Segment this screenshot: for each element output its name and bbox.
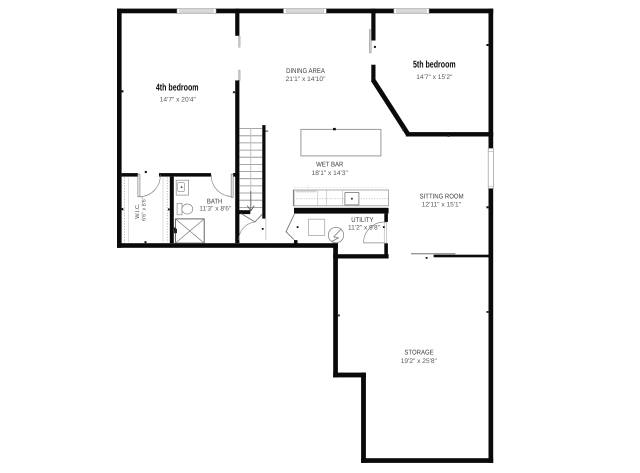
svg-text:UTILITY: UTILITY xyxy=(351,217,374,224)
svg-text:19'2" x 25'8": 19'2" x 25'8" xyxy=(401,358,438,365)
svg-text:11'2" x 9'8": 11'2" x 9'8" xyxy=(348,224,381,231)
svg-text:5th bedroom: 5th bedroom xyxy=(413,60,456,71)
svg-text:DINING AREA: DINING AREA xyxy=(286,68,325,75)
svg-text:18'1" x 14'3": 18'1" x 14'3" xyxy=(312,170,349,177)
svg-text:11'3" x 8'6": 11'3" x 8'6" xyxy=(199,206,232,213)
svg-text:WET BAR: WET BAR xyxy=(316,162,343,169)
svg-text:STORAGE: STORAGE xyxy=(404,350,434,357)
svg-text:4th bedroom: 4th bedroom xyxy=(156,82,199,93)
svg-text:14'7" x 20'4": 14'7" x 20'4" xyxy=(160,97,197,104)
svg-text:14'7" x 15'2": 14'7" x 15'2" xyxy=(416,74,453,81)
svg-text:SITTING ROOM: SITTING ROOM xyxy=(420,193,464,200)
svg-text:6'6" x 8'6": 6'6" x 8'6" xyxy=(142,197,148,221)
svg-text:21'1" x 14'10": 21'1" x 14'10" xyxy=(286,76,326,83)
svg-text:12'11" x 15'1": 12'11" x 15'1" xyxy=(422,202,462,209)
svg-text:BATH: BATH xyxy=(207,198,223,205)
svg-text:W.I.C.: W.I.C. xyxy=(135,203,141,219)
